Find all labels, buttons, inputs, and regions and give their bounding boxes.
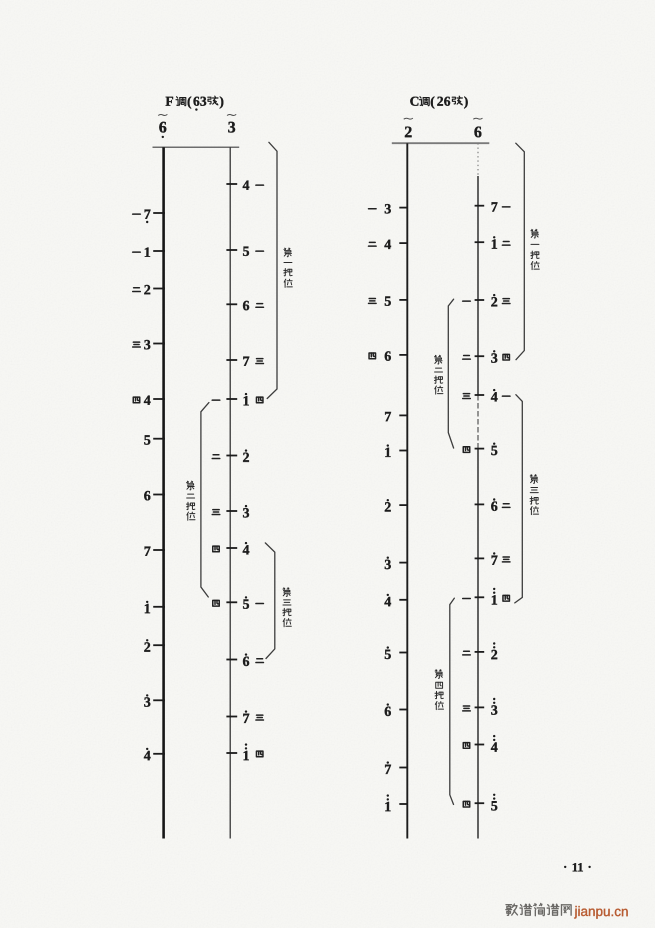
svg-text:6: 6	[444, 94, 451, 109]
svg-text:4: 4	[384, 595, 391, 610]
svg-text:): )	[219, 94, 224, 109]
svg-text:4: 4	[491, 390, 498, 405]
svg-text:6: 6	[474, 124, 482, 141]
svg-text:5: 5	[242, 245, 249, 260]
svg-text:7: 7	[491, 200, 498, 215]
svg-text:jianpu.cn: jianpu.cn	[573, 904, 628, 919]
svg-text:6: 6	[384, 350, 391, 365]
svg-text:1: 1	[491, 593, 498, 608]
svg-text:7: 7	[242, 355, 249, 370]
svg-text:7: 7	[491, 554, 498, 569]
svg-text:3: 3	[228, 119, 236, 136]
svg-text:4: 4	[144, 394, 151, 409]
svg-text:5: 5	[242, 598, 249, 613]
svg-text:3: 3	[242, 506, 249, 521]
svg-text:3: 3	[200, 94, 207, 109]
svg-text:7: 7	[384, 410, 391, 425]
svg-text:1: 1	[144, 246, 151, 261]
svg-text:4: 4	[242, 179, 249, 194]
svg-text:2: 2	[404, 124, 412, 141]
svg-text:7: 7	[384, 763, 391, 778]
svg-text:3: 3	[144, 338, 151, 353]
svg-text:3: 3	[384, 202, 391, 217]
svg-text:2: 2	[491, 648, 498, 663]
svg-text:2: 2	[384, 500, 391, 515]
svg-text:6: 6	[159, 119, 167, 136]
svg-text:3: 3	[491, 704, 498, 719]
svg-text:3: 3	[144, 696, 151, 711]
svg-text:4: 4	[491, 741, 498, 756]
svg-text:5: 5	[491, 444, 498, 459]
svg-text:1: 1	[491, 238, 498, 253]
svg-text:5: 5	[144, 433, 151, 448]
svg-text:5: 5	[384, 295, 391, 310]
svg-text:): )	[464, 94, 469, 109]
svg-text:4: 4	[242, 543, 249, 558]
svg-text:6: 6	[242, 299, 249, 314]
svg-text:2: 2	[144, 283, 151, 298]
svg-text:7: 7	[144, 545, 151, 560]
svg-text:5: 5	[384, 648, 391, 663]
svg-text:4: 4	[384, 238, 391, 253]
svg-text:6: 6	[242, 655, 249, 670]
svg-text:11: 11	[572, 860, 584, 874]
svg-text:1: 1	[242, 749, 249, 764]
svg-text:3: 3	[491, 352, 498, 367]
svg-text:1: 1	[144, 602, 151, 617]
svg-text:2: 2	[491, 295, 498, 310]
svg-text:(: (	[187, 94, 192, 109]
svg-text:2: 2	[242, 451, 249, 466]
svg-text:2: 2	[144, 641, 151, 656]
svg-text:4: 4	[144, 749, 151, 764]
svg-text:6: 6	[491, 500, 498, 515]
svg-text:7: 7	[144, 208, 151, 223]
svg-text:3: 3	[384, 558, 391, 573]
svg-text:(: (	[430, 94, 435, 109]
svg-text:C: C	[410, 94, 420, 109]
svg-text:1: 1	[384, 446, 391, 461]
svg-text:1: 1	[384, 800, 391, 815]
svg-text:6: 6	[144, 489, 151, 504]
svg-text:F: F	[165, 94, 173, 109]
svg-text:6: 6	[384, 705, 391, 720]
svg-text:1: 1	[242, 394, 249, 409]
svg-text:7: 7	[242, 712, 249, 727]
svg-text:5: 5	[491, 799, 498, 814]
